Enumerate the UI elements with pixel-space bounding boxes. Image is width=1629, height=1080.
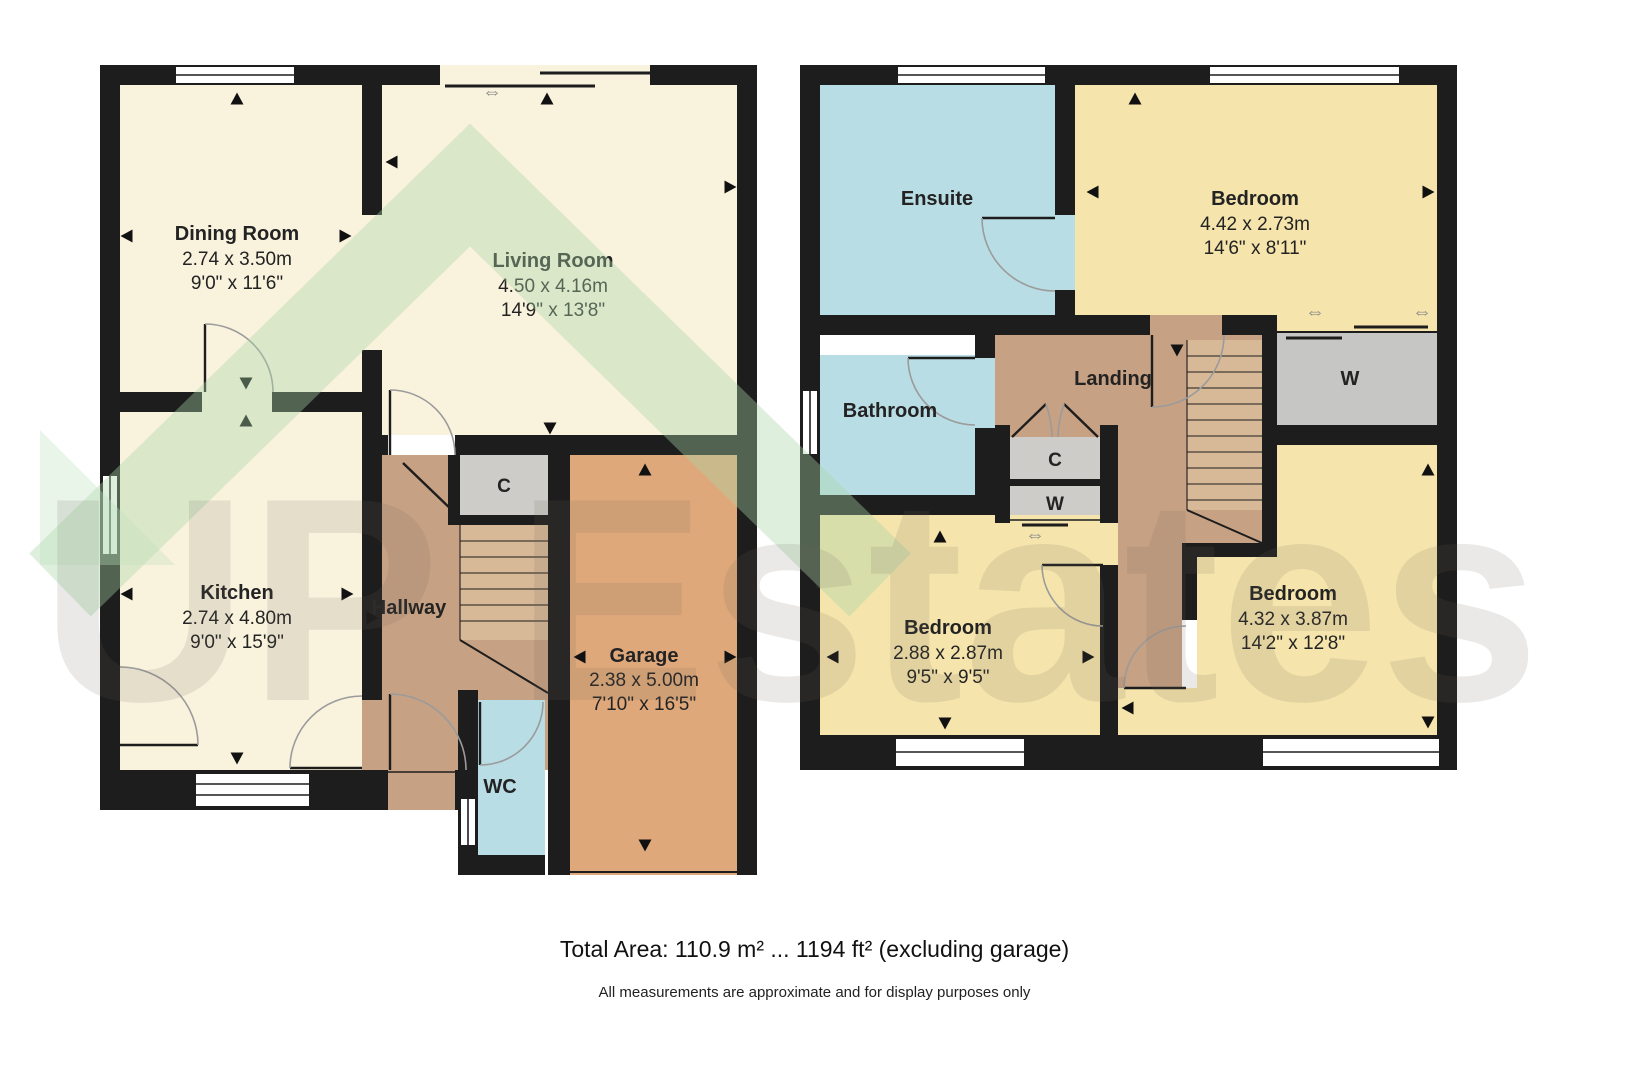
bedroom-small-imperial: 9'5" x 9'5" <box>906 667 989 688</box>
slider-arrow-icon: ⇔ <box>482 81 502 103</box>
wardrobe-slider-arrow-icon: ⇔ <box>1412 301 1432 323</box>
first-floor-plan: ⇔ ⇔ ⇔ Ensuite Bedroom 4.42 x 2.73m 14'6"… <box>800 65 1457 770</box>
ground-floor-plan: ⇔ <box>100 65 757 875</box>
bedroom-small-label: Bedroom <box>904 617 992 639</box>
bedroom-front-label: Bedroom <box>1211 188 1299 210</box>
closet-slider-arrow-icon: ⇔ <box>1025 524 1045 546</box>
wardrobe-small-label: W <box>1046 494 1064 515</box>
garage-imperial: 7'10" x 16'5" <box>592 694 696 715</box>
garage-label: Garage <box>610 645 679 667</box>
dining-room-imperial: 9'0" x 11'6" <box>191 273 283 294</box>
bathroom-label: Bathroom <box>843 400 937 422</box>
garage-metric: 2.38 x 5.00m <box>589 670 699 691</box>
dining-room-metric: 2.74 x 3.50m <box>182 249 292 270</box>
living-room-imperial: 14'9" x 13'8" <box>501 300 605 321</box>
wardrobe-label: W <box>1341 368 1360 390</box>
kitchen-imperial: 9'0" x 15'9" <box>190 632 284 653</box>
hallway-label: Hallway <box>372 597 447 619</box>
bedroom-small-metric: 2.88 x 2.87m <box>893 643 1003 664</box>
living-room-label: Living Room <box>492 250 613 272</box>
kitchen-label: Kitchen <box>200 582 273 604</box>
cupboard-ground-label: C <box>497 476 511 497</box>
living-room-metric: 4.50 x 4.16m <box>498 276 608 297</box>
bedroom-rear-imperial: 14'2" x 12'8" <box>1241 633 1345 654</box>
bedroom-front-imperial: 14'6" x 8'11" <box>1204 238 1307 259</box>
bathroom <box>820 355 975 495</box>
wc-label: WC <box>483 776 516 798</box>
landing-label: Landing <box>1074 368 1152 390</box>
total-area-text: Total Area: 110.9 m² ... 1194 ft² (exclu… <box>0 936 1629 963</box>
cupboard-first-label: C <box>1048 450 1062 471</box>
ensuite-label: Ensuite <box>901 188 973 210</box>
wardrobe-slider-arrow-icon: ⇔ <box>1305 301 1325 323</box>
kitchen-metric: 2.74 x 4.80m <box>182 608 292 629</box>
bedroom-front-metric: 4.42 x 2.73m <box>1200 214 1310 235</box>
bedroom-rear-label: Bedroom <box>1249 583 1337 605</box>
bedroom-rear-metric: 4.32 x 3.87m <box>1238 609 1348 630</box>
floorplan-page: ⇔ <box>0 0 1629 1080</box>
dining-room-label: Dining Room <box>175 223 299 245</box>
floorplan-drawing: ⇔ <box>0 0 1629 1080</box>
disclaimer-text: All measurements are approximate and for… <box>0 984 1629 1001</box>
